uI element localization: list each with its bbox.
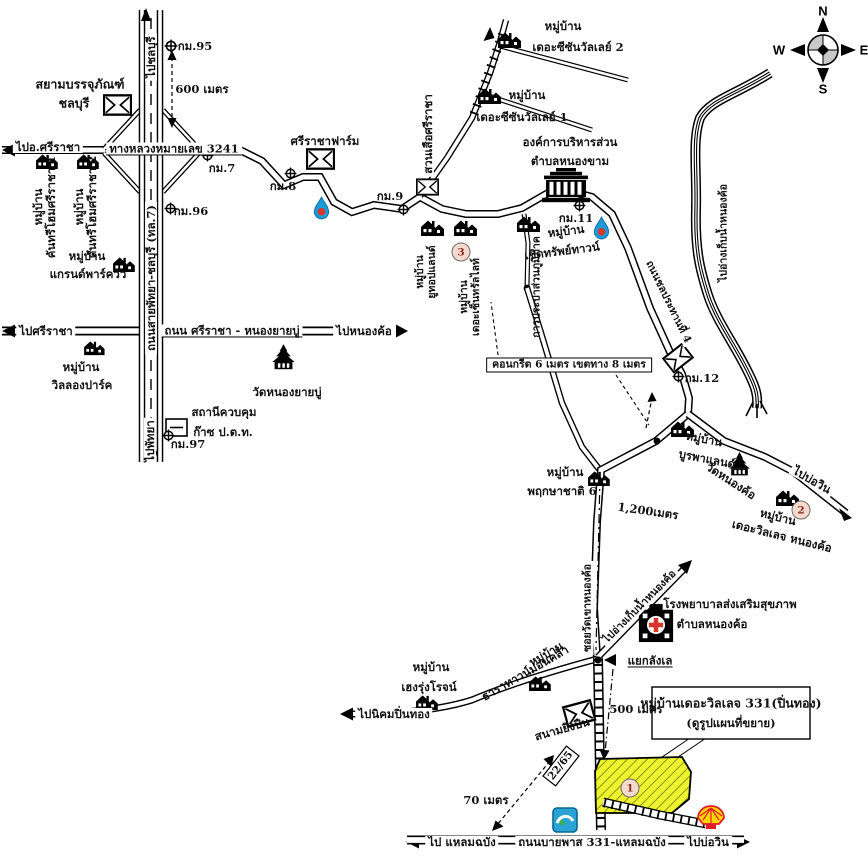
village-icon-cherdsap xyxy=(517,217,540,233)
village-hengrung-name: เฮงรุ่งโรจน์ xyxy=(401,681,456,693)
to-nongkho-label: ไปหนองค้อ xyxy=(333,325,395,337)
village-wilong-prefix: หมู่บ้าน xyxy=(63,361,100,373)
distance-600m: 600 เมตร xyxy=(175,83,228,95)
village-icon-utop xyxy=(421,221,444,237)
wat-nongyaibu-label: วัดหนองยายบู่ xyxy=(252,386,321,398)
motorway-name-label: ถนนสายพัทยา-ชลบุรี (ทล.7) xyxy=(145,202,157,354)
canal xyxy=(695,73,770,418)
temple-icon-nongyaibu xyxy=(272,344,294,369)
hwy3241-label: ทางหลวงหมายเลข 3241 xyxy=(106,142,242,155)
km97-label: กม.97 xyxy=(171,438,206,450)
langle-junction-dot xyxy=(594,656,601,663)
km95-label: กม.95 xyxy=(178,40,213,52)
compass-n: N xyxy=(818,4,827,19)
to-pattaya-label: ไปพัทยา xyxy=(144,417,156,464)
blue-station-logo xyxy=(553,808,577,832)
village-centrallight: หมู่บ้านเดอะเซ็นทรัลไลท์ xyxy=(458,258,482,336)
to-bowin-south-label: ไปบ่อวิน xyxy=(684,836,732,848)
sriracha-farm-label: ศรีราชาฟาร์ม xyxy=(291,135,360,147)
gas-control-label-1: สถานีควบคุม xyxy=(191,406,256,418)
soi-langle-label: ซอยวัดเขาหนองค้อ xyxy=(582,561,593,655)
to-laemchabang-label: ไป แหลมฉบัง xyxy=(425,836,498,848)
village-icon-wilong xyxy=(84,341,104,355)
legend-line2: (ดูรูปแผนที่ขยาย) xyxy=(686,717,775,729)
km8-label: กม.8 xyxy=(270,180,297,192)
km7-label: กม.7 xyxy=(209,162,236,174)
route-map: N E S W ไปชลบุรี กม.95 600 เมตร สยามบรรจ… xyxy=(0,0,868,867)
village-icon-centrallight xyxy=(454,221,477,237)
road-sriracha-nongyaibu-label: ถนน ศรีราชา - หนองยายบู่ xyxy=(161,324,302,337)
village-pruksachat-name: พฤกษาชาติ 6 xyxy=(527,485,596,497)
village-utop: หมู่บ้านยูทอปแลนด์ xyxy=(414,245,438,298)
km12-label: กม.12 xyxy=(685,372,720,384)
village-grandparkview-name: แกรนด์พาร์ควิว xyxy=(50,268,127,280)
km95-marker xyxy=(165,40,178,53)
village-season1-name: เดอะซีซันวัลเลย์ 1 xyxy=(476,111,567,123)
compass-w: W xyxy=(773,43,785,58)
hospital-label-2: ตำบลหนองค้อ xyxy=(677,618,748,630)
village-season2-prefix: หมู่บ้าน xyxy=(545,20,582,32)
fuel-station-icon-1 xyxy=(314,197,328,219)
compass-s: S xyxy=(819,82,828,97)
bypass331-label: ถนนบายพาส 331-แหลมฉบัง xyxy=(515,836,668,848)
to-amphoe-sriracha-label: ไปอ.ศรีราชา xyxy=(13,141,83,153)
siam-pack-label-1: สยามบรรจุภัณฑ์ xyxy=(35,77,124,90)
village-season2-name: เดอะซีซันวัลเลย์ 2 xyxy=(532,41,623,53)
village-countryhome2: หมู่บ้านคันทรีโฮมศรีราชา 2 xyxy=(73,156,99,258)
obt-label-2: ตำบลหนองขาม xyxy=(531,155,609,167)
tiger-zoo-label: สวนเสือศรีราชา xyxy=(422,91,434,177)
hospital-label-1: โรงพยาบาลส่งเสริมสุขภาพ xyxy=(663,598,796,610)
yaek-langle-label: แยกลังเล xyxy=(628,654,673,667)
fuel-station-icon-2 xyxy=(594,217,608,239)
legend-line1: หมู่บ้านเดอะวิลเลจ 331(ปิ่นทอง) xyxy=(640,696,821,709)
concrete-spec-label: คอนกรีต 6 เมตร เขตทาง 8 เมตร xyxy=(486,357,652,372)
canal-label: ไปอ่างเก็บน้ำหนองค้อ xyxy=(718,184,729,282)
compass-e: E xyxy=(860,43,868,58)
village-wilong-name: วิลลองปาร์ค xyxy=(52,379,113,391)
siam-pack-label-2: ชลบุรี xyxy=(59,96,90,109)
compass-rose xyxy=(790,17,856,83)
langle-pointer xyxy=(604,654,616,666)
village-countryhome1: หมู่บ้านคันทรีโฮมศรีราชา 1 xyxy=(32,156,58,258)
destination-site xyxy=(595,757,706,824)
village-season1-prefix: หมู่บ้าน xyxy=(509,89,546,101)
circled-number-1: 1 xyxy=(621,779,640,798)
bridge-icon-sriracha-farm xyxy=(307,149,334,168)
obt-label-1: องค์การบริหารส่วน xyxy=(523,136,618,148)
distance-70m: 70 เมตร xyxy=(463,794,508,806)
to-pinthong-label: ไปนิคมปิ่นทอง xyxy=(355,708,432,720)
bridge-icon-junction xyxy=(417,179,438,194)
village-pruksachat-prefix: หมู่บ้าน xyxy=(547,466,584,478)
bridge-icon-siam-pack xyxy=(104,95,131,114)
km9-label: กม.9 xyxy=(377,190,404,202)
village-hengrung-prefix: หมู่บ้าน xyxy=(413,661,450,673)
to-chonburi-label: ไปชลบุรี xyxy=(145,33,157,80)
to-sriracha-label: ไปศรีราชา xyxy=(16,325,75,337)
km96-label: กม.96 xyxy=(174,205,209,217)
village-grandparkview-prefix: หมู่บ้าน xyxy=(69,250,106,262)
